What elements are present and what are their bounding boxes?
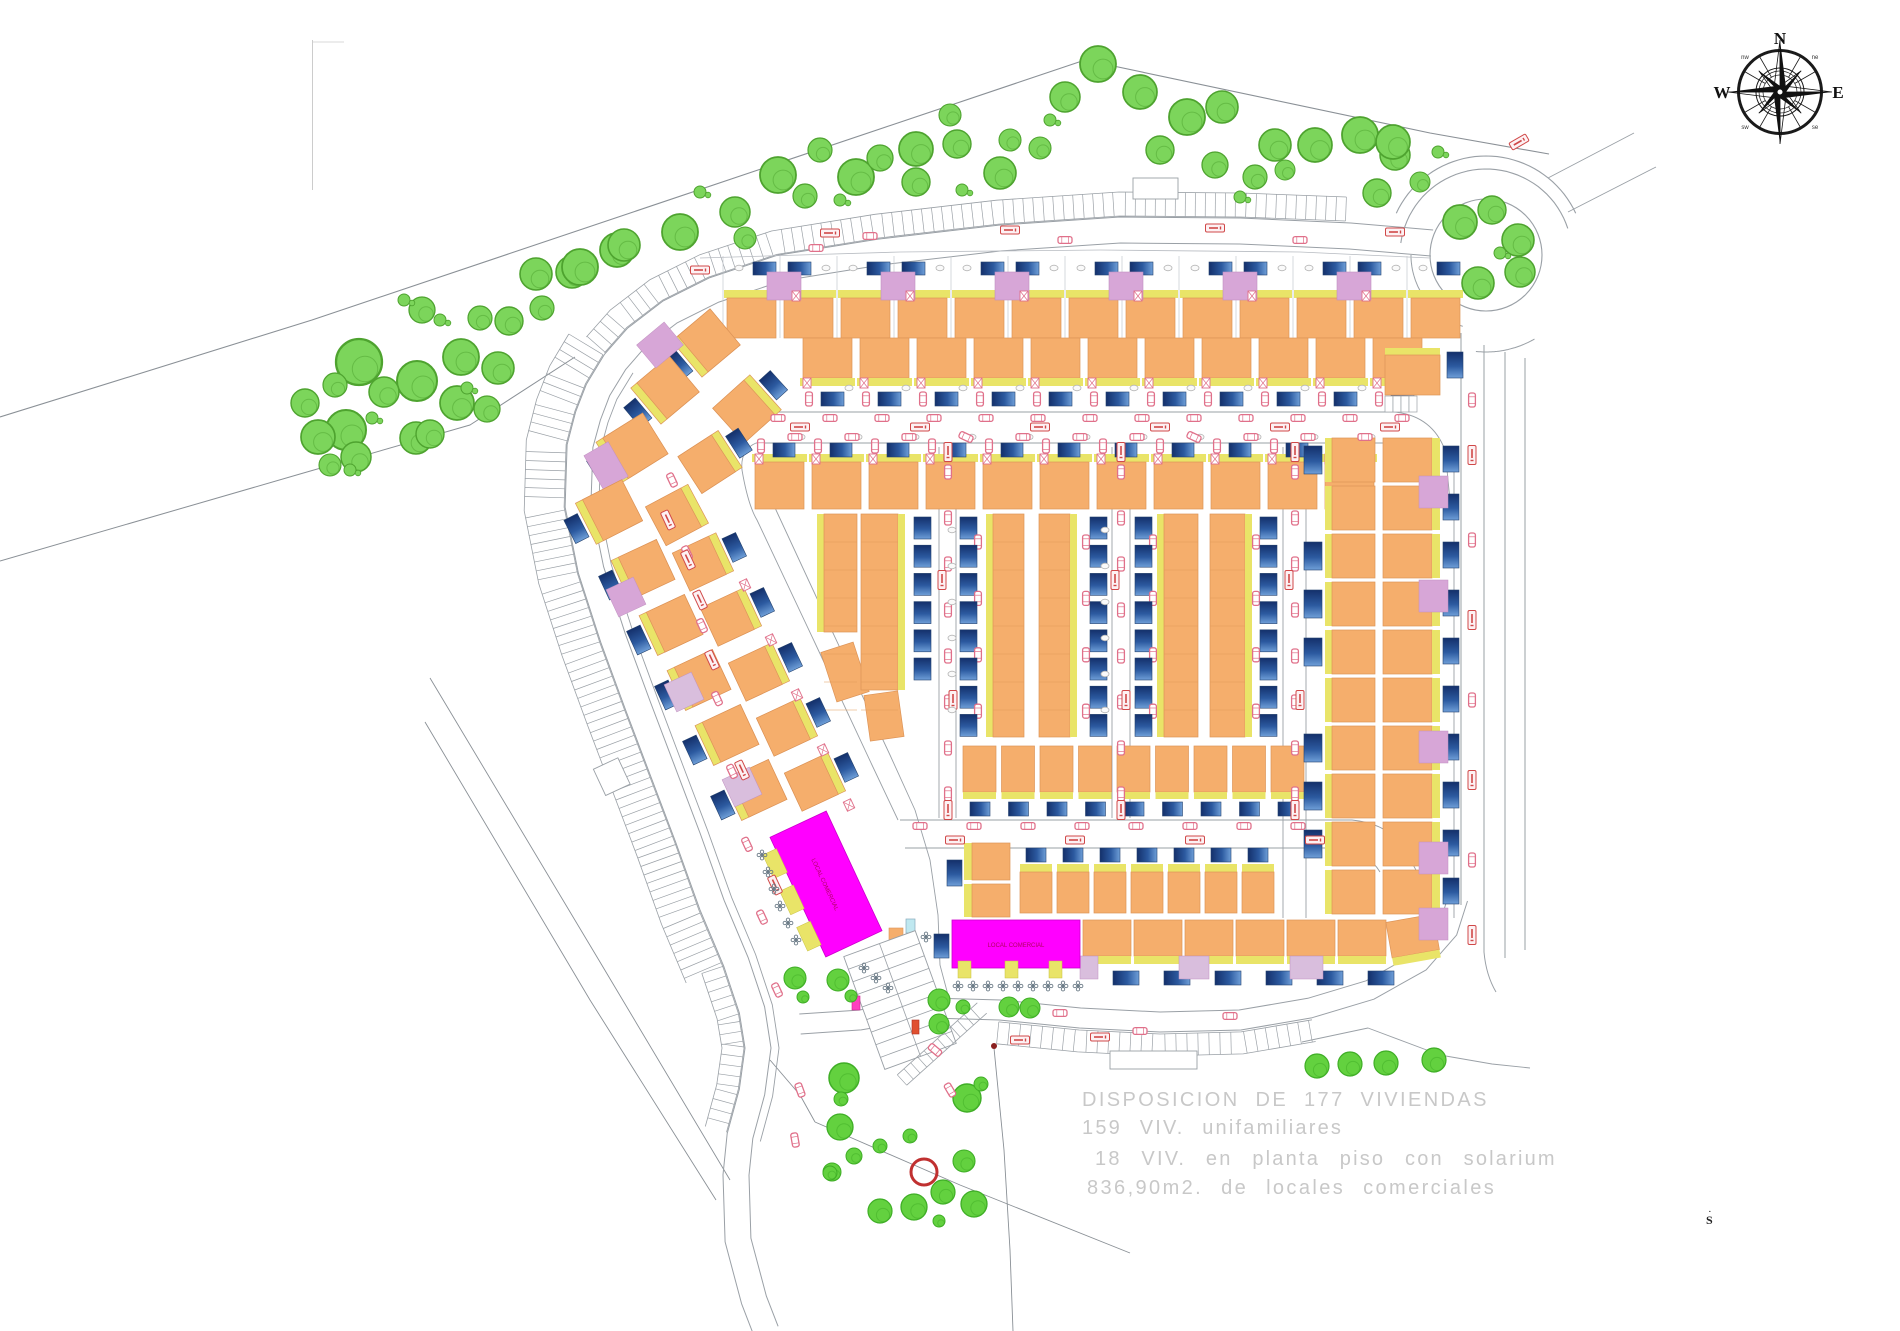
svg-text:LOCAL COMERCIAL: LOCAL COMERCIAL xyxy=(988,943,1045,949)
svg-text:se: se xyxy=(1812,125,1819,131)
svg-text:S: S xyxy=(1706,1213,1713,1227)
svg-text:sw: sw xyxy=(1741,125,1749,131)
svg-text:159 VIV. unifamiliares: 159 VIV. unifamiliares xyxy=(1082,1117,1343,1139)
svg-text:E: E xyxy=(1832,83,1843,102)
svg-text:18 VIV. en planta piso con sol: 18 VIV. en planta piso con solarium xyxy=(1095,1148,1557,1170)
svg-text:836,90m2. de locales comercial: 836,90m2. de locales comerciales xyxy=(1087,1177,1496,1199)
svg-text:nw: nw xyxy=(1741,55,1749,61)
svg-text:DISPOSICION DE 177 VIVIENDAS: DISPOSICION DE 177 VIVIENDAS xyxy=(1082,1089,1489,1111)
svg-text:ne: ne xyxy=(1812,55,1819,61)
svg-text:N: N xyxy=(1774,29,1787,48)
svg-text:W: W xyxy=(1714,83,1731,102)
